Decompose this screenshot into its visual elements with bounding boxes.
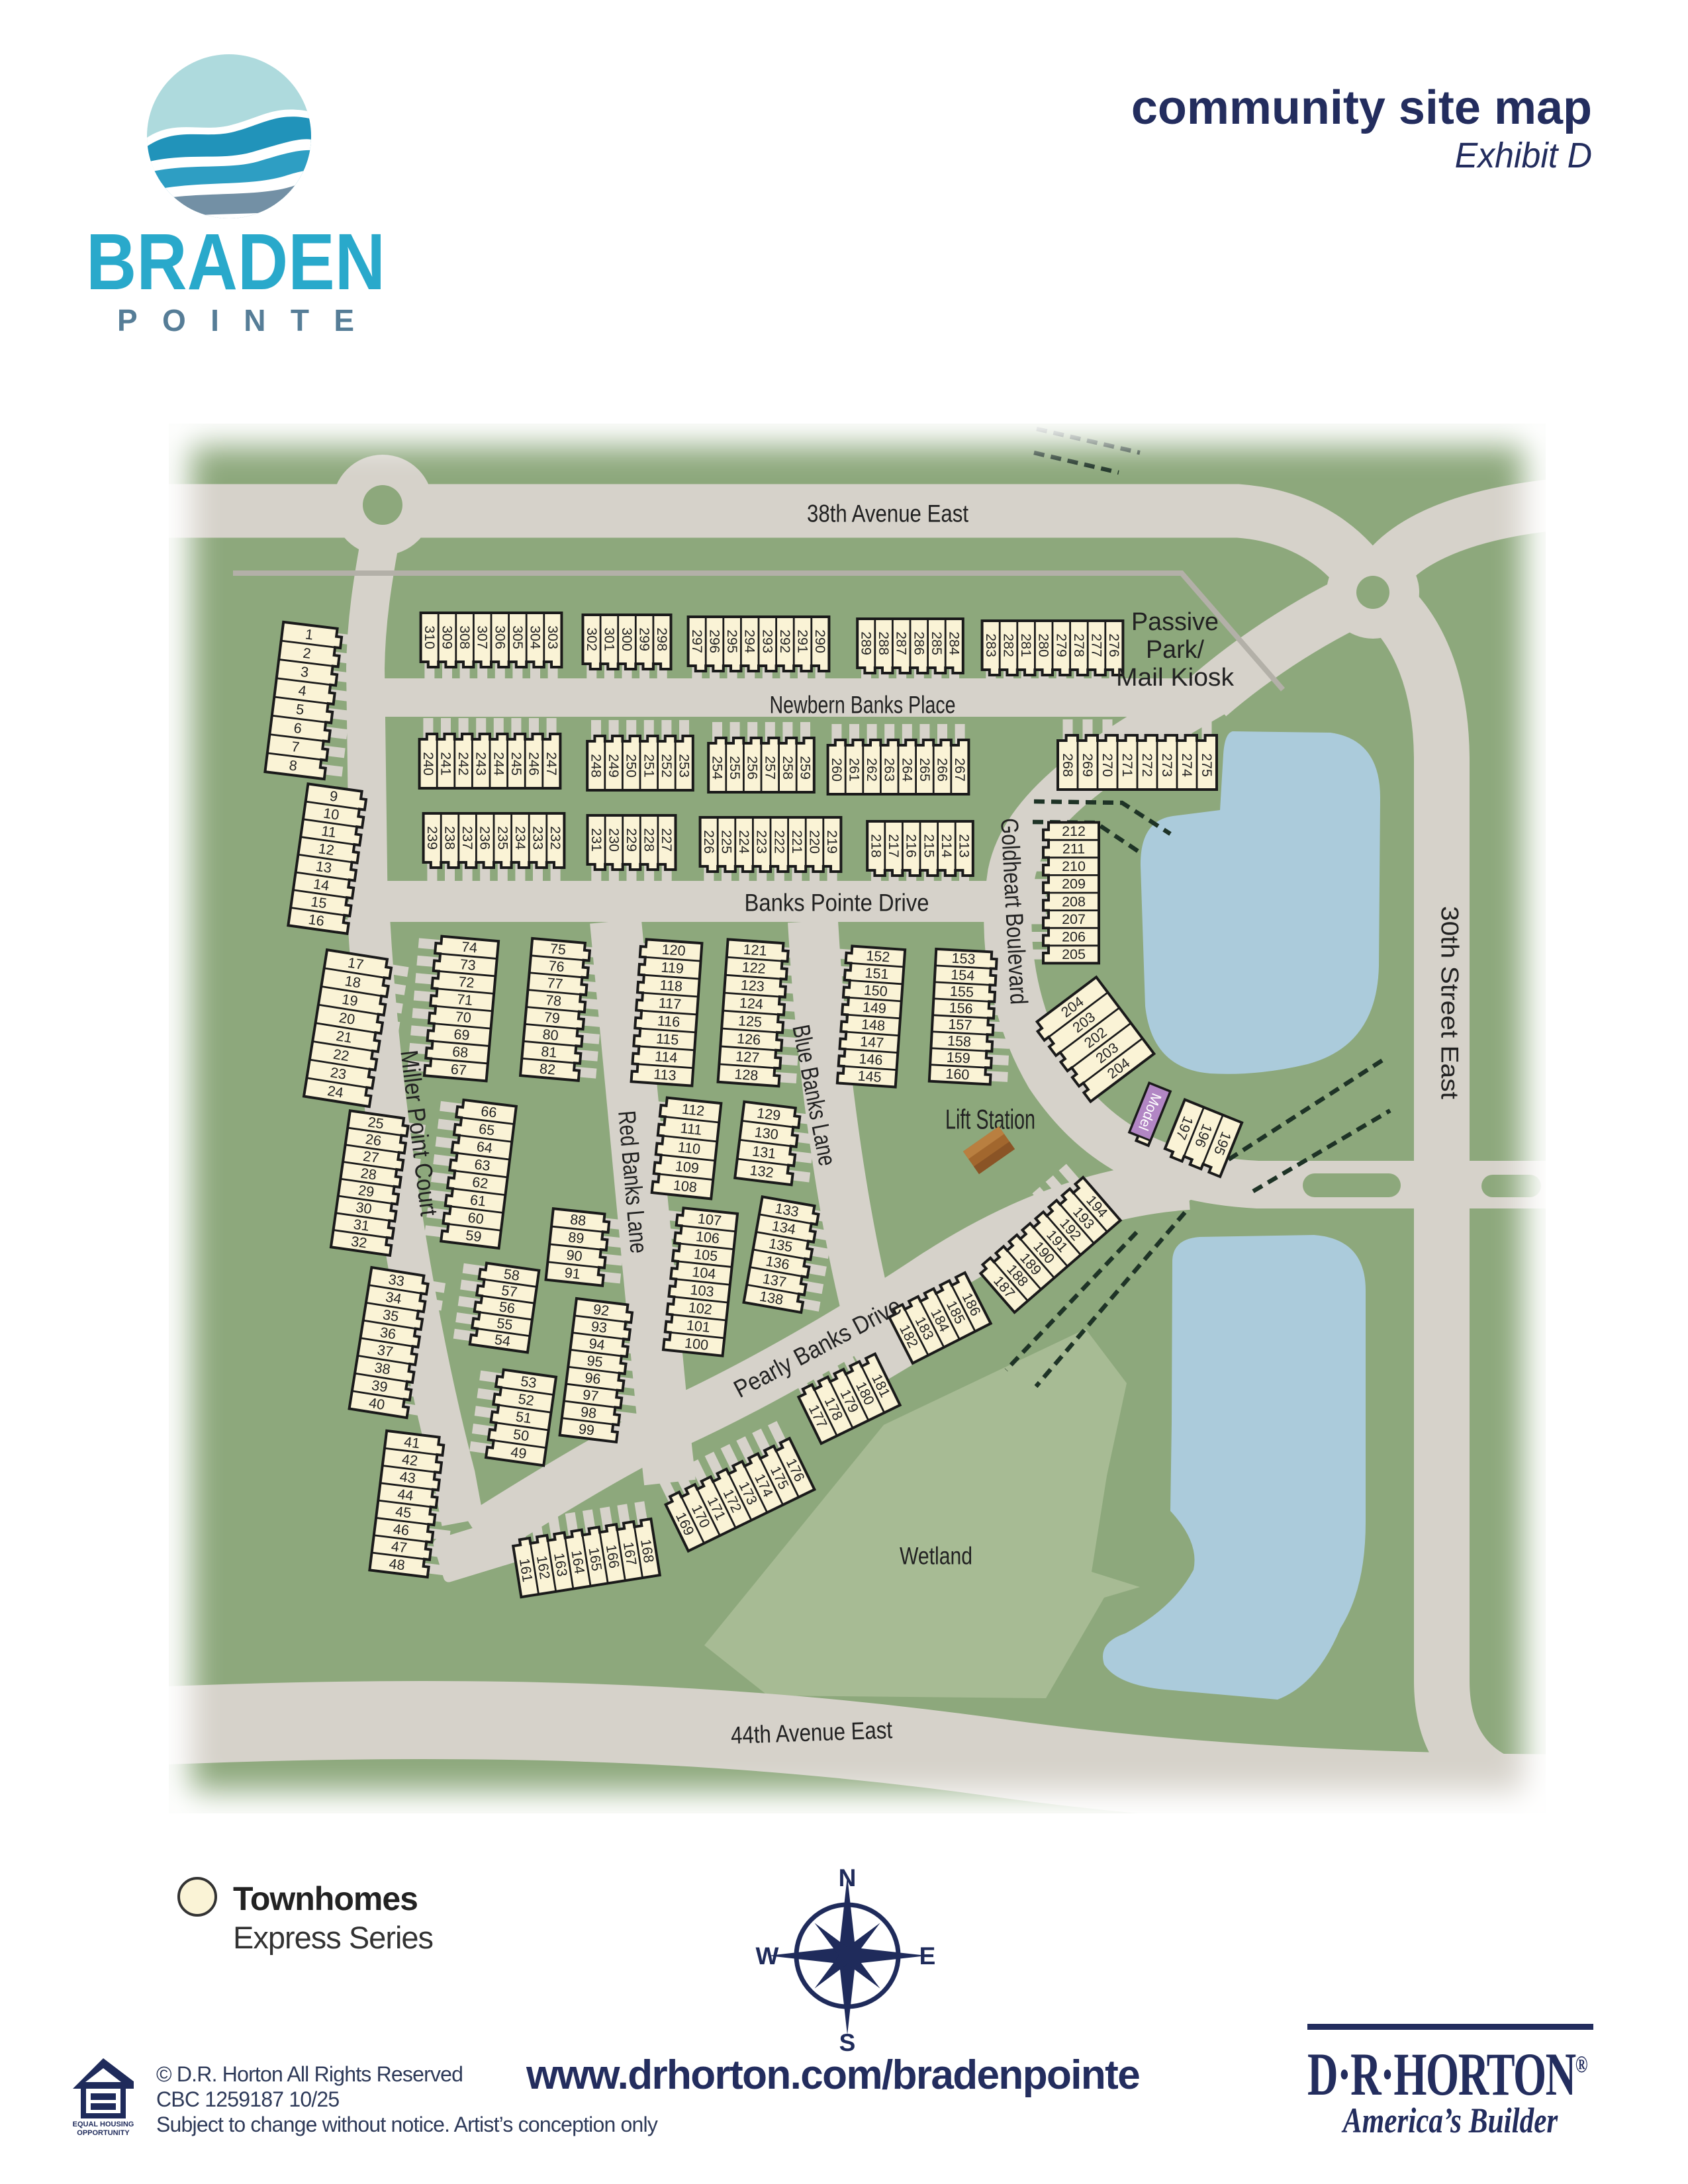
svg-text:N: N: [839, 1864, 857, 1891]
svg-text:W: W: [756, 1942, 779, 1970]
svg-text:BRADEN: BRADEN: [86, 216, 385, 306]
svg-text:OPPORTUNITY: OPPORTUNITY: [77, 2129, 130, 2137]
svg-text:EQUAL HOUSING: EQUAL HOUSING: [73, 2120, 134, 2128]
svg-text:POINTE: POINTE: [117, 303, 354, 338]
svg-text:E: E: [919, 1942, 936, 1970]
